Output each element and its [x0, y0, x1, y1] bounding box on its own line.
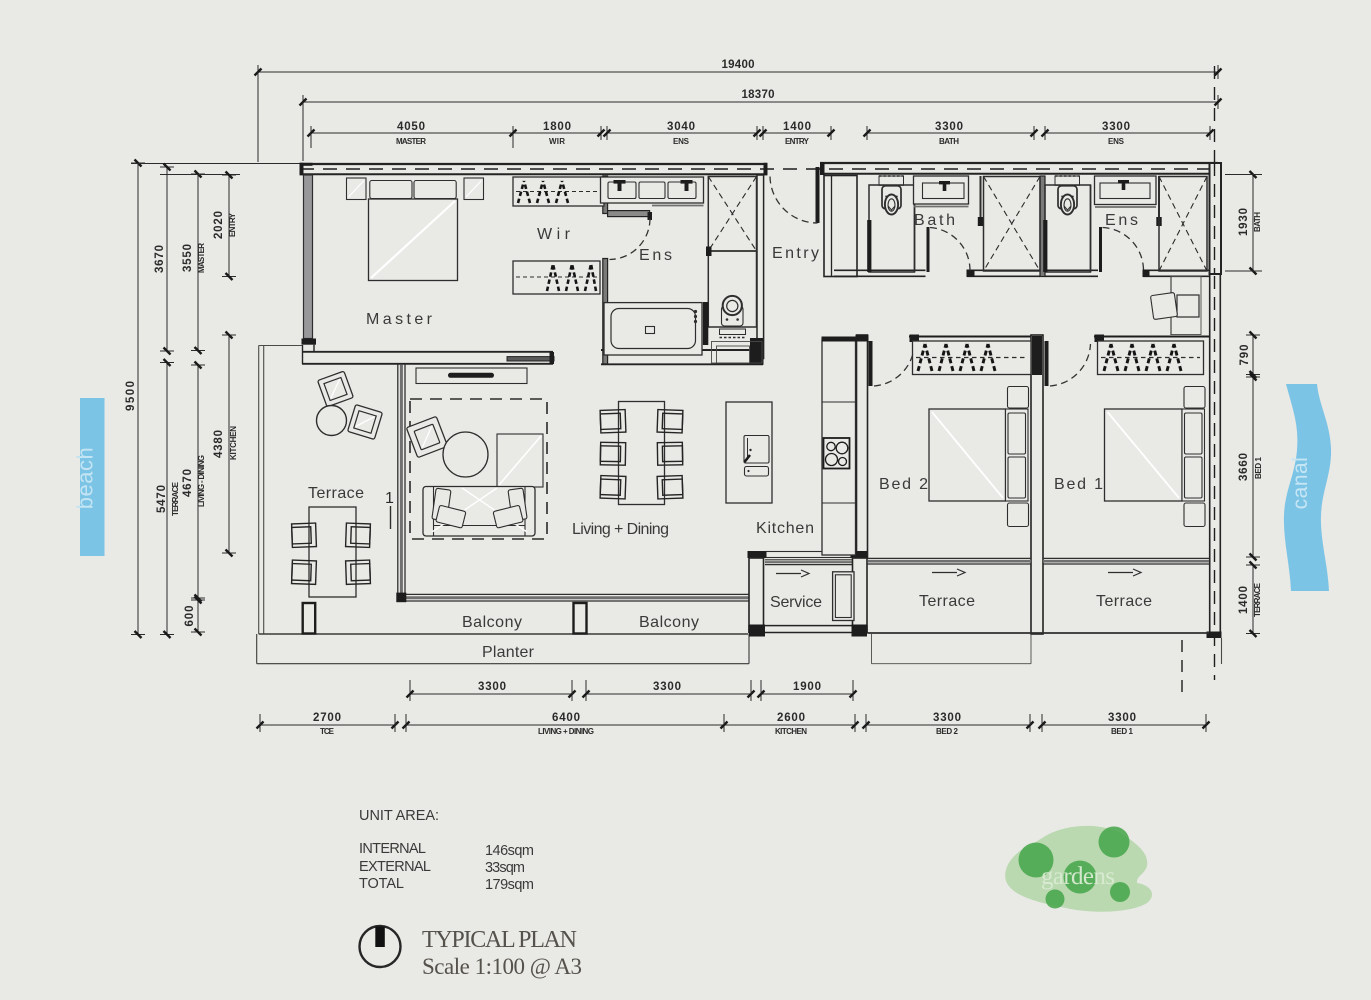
svg-text:TCE: TCE	[320, 727, 335, 736]
svg-text:6400: 6400	[552, 712, 580, 724]
svg-text:3040: 3040	[667, 121, 695, 133]
svg-text:EXTERNAL: EXTERNAL	[359, 859, 431, 875]
svg-text:Balcony: Balcony	[639, 614, 699, 631]
svg-text:beach: beach	[73, 447, 98, 509]
svg-text:3300: 3300	[478, 681, 506, 693]
svg-text:BATH: BATH	[1253, 212, 1262, 232]
svg-text:Bed 2: Bed 2	[879, 476, 928, 493]
svg-text:Ens: Ens	[639, 247, 672, 264]
svg-text:1400: 1400	[783, 121, 811, 133]
svg-text:3660: 3660	[1238, 453, 1250, 481]
svg-text:BED 2: BED 2	[936, 727, 959, 736]
svg-text:3300: 3300	[1102, 121, 1130, 133]
svg-text:3300: 3300	[935, 121, 963, 133]
svg-text:146sqm: 146sqm	[485, 843, 534, 859]
svg-text:BATH: BATH	[939, 137, 959, 146]
svg-text:MASTER: MASTER	[197, 243, 206, 273]
svg-text:Kitchen: Kitchen	[756, 520, 814, 537]
svg-text:TERRACE: TERRACE	[1253, 582, 1262, 617]
svg-text:KITCHEN: KITCHEN	[229, 426, 238, 460]
svg-text:Planter: Planter	[482, 644, 535, 661]
svg-text:canal: canal	[1289, 457, 1312, 510]
svg-text:LIVING - DINING: LIVING - DINING	[197, 455, 206, 507]
svg-text:3550: 3550	[182, 244, 194, 272]
svg-text:9500: 9500	[125, 381, 137, 411]
svg-text:33sqm: 33sqm	[485, 860, 525, 876]
svg-text:Terrace: Terrace	[1096, 593, 1152, 610]
svg-text:2020: 2020	[213, 211, 225, 239]
svg-text:Scale 1:100 @ A3: Scale 1:100 @ A3	[422, 954, 582, 979]
svg-text:TYPICAL PLAN: TYPICAL PLAN	[422, 927, 577, 953]
svg-text:Terrace: Terrace	[919, 593, 975, 610]
svg-text:3300: 3300	[653, 681, 681, 693]
svg-text:2700: 2700	[313, 712, 341, 724]
svg-text:Service: Service	[770, 594, 822, 611]
svg-text:4050: 4050	[397, 121, 425, 133]
svg-text:19400: 19400	[722, 59, 755, 71]
svg-text:ENS: ENS	[673, 137, 690, 146]
svg-text:Living + Dining: Living + Dining	[572, 521, 669, 538]
svg-text:1: 1	[385, 490, 394, 507]
svg-text:Ens: Ens	[1105, 212, 1138, 229]
svg-text:KITCHEN: KITCHEN	[775, 727, 807, 736]
svg-text:TERRACE: TERRACE	[171, 481, 180, 516]
svg-text:3300: 3300	[933, 712, 961, 724]
svg-text:5470: 5470	[156, 485, 168, 513]
svg-text:BED 1: BED 1	[1111, 727, 1134, 736]
svg-text:790: 790	[1239, 345, 1251, 366]
svg-text:600: 600	[184, 606, 196, 627]
svg-text:Balcony: Balcony	[462, 614, 522, 631]
svg-text:UNIT AREA:: UNIT AREA:	[359, 808, 439, 824]
svg-text:18370: 18370	[742, 89, 775, 101]
svg-text:2600: 2600	[777, 712, 805, 724]
svg-text:Master: Master	[366, 311, 433, 328]
svg-text:Entry: Entry	[772, 245, 819, 262]
svg-text:3670: 3670	[154, 245, 166, 273]
svg-text:179sqm: 179sqm	[485, 877, 534, 893]
svg-text:Bath: Bath	[914, 212, 955, 229]
svg-text:4380: 4380	[213, 430, 225, 458]
svg-text:ENTRY: ENTRY	[785, 137, 810, 146]
svg-text:LIVING + DINING: LIVING + DINING	[538, 727, 594, 736]
svg-text:1930: 1930	[1238, 208, 1250, 236]
svg-text:1400: 1400	[1238, 586, 1250, 614]
svg-text:3300: 3300	[1108, 712, 1136, 724]
svg-text:INTERNAL: INTERNAL	[359, 841, 426, 857]
svg-text:TOTAL: TOTAL	[359, 876, 404, 892]
svg-text:Bed 1: Bed 1	[1054, 476, 1103, 493]
svg-text:WIR: WIR	[549, 137, 565, 146]
svg-text:4670: 4670	[182, 469, 194, 497]
svg-text:1800: 1800	[543, 121, 571, 133]
svg-text:ENS: ENS	[1108, 137, 1125, 146]
svg-text:gardens: gardens	[1041, 863, 1115, 890]
svg-text:ENTRY: ENTRY	[228, 212, 237, 237]
svg-text:BED 1: BED 1	[1254, 456, 1263, 479]
svg-text:MASTER: MASTER	[396, 137, 426, 146]
svg-text:1900: 1900	[793, 681, 821, 693]
svg-text:Terrace: Terrace	[308, 485, 364, 502]
